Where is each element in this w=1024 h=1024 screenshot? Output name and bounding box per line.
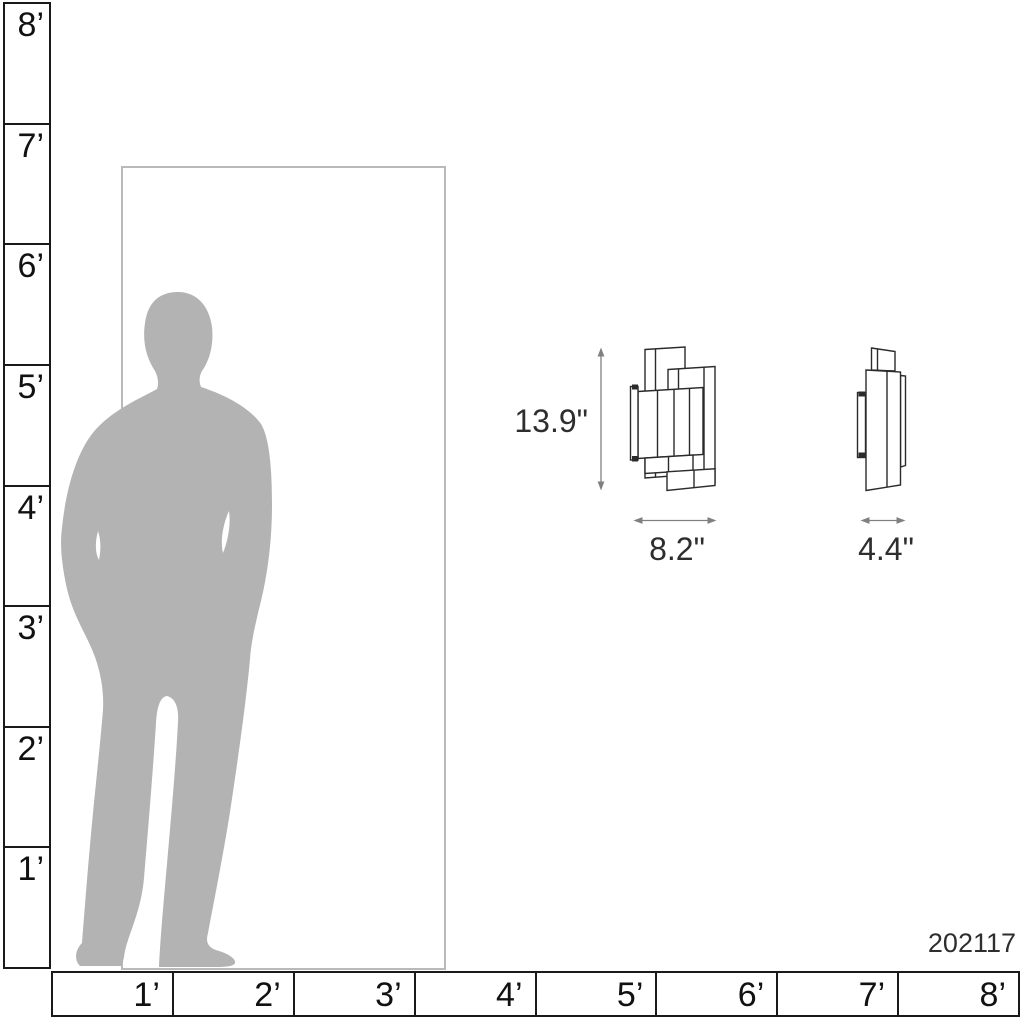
width-dimension-label: 8.2"	[607, 531, 747, 567]
left-ruler-cell: 8’	[5, 4, 49, 123]
depth-dimension-arrow	[861, 517, 906, 524]
size-comparison-diagram: 8’7’6’5’4’3’2’1’ 1’2’3’4’5’6’7’8’ 13.9" …	[0, 0, 1024, 1024]
left-ruler: 8’7’6’5’4’3’2’1’	[3, 2, 51, 969]
left-ruler-cell: 5’	[5, 364, 49, 485]
bottom-ruler-cell: 8’	[897, 973, 1018, 1015]
left-ruler-cell: 1’	[5, 846, 49, 967]
bottom-ruler-cell: 4’	[414, 973, 535, 1015]
left-ruler-cell: 4’	[5, 485, 49, 606]
bottom-ruler-cell: 6’	[655, 973, 776, 1015]
width-dimension-arrow	[634, 517, 717, 524]
bottom-ruler: 1’2’3’4’5’6’7’8’	[51, 971, 1020, 1017]
bottom-ruler-cell: 1’	[53, 973, 172, 1015]
left-ruler-cell: 3’	[5, 605, 49, 726]
depth-dimension-label: 4.4"	[816, 531, 956, 567]
product-number: 202117	[856, 928, 1016, 958]
bottom-ruler-cell: 2’	[172, 973, 293, 1015]
sconce-front-view-drawing	[631, 347, 716, 491]
left-ruler-cell: 6’	[5, 243, 49, 364]
bottom-ruler-cell: 7’	[776, 973, 897, 1015]
left-ruler-cell: 7’	[5, 123, 49, 244]
bottom-ruler-cell: 5’	[535, 973, 656, 1015]
bottom-ruler-cell: 3’	[293, 973, 414, 1015]
sconce-side-view-drawing	[858, 348, 906, 491]
height-dimension-arrow	[598, 348, 605, 491]
left-ruler-cell: 2’	[5, 726, 49, 847]
door-outline	[121, 166, 446, 970]
height-dimension-label: 13.9"	[448, 403, 588, 439]
